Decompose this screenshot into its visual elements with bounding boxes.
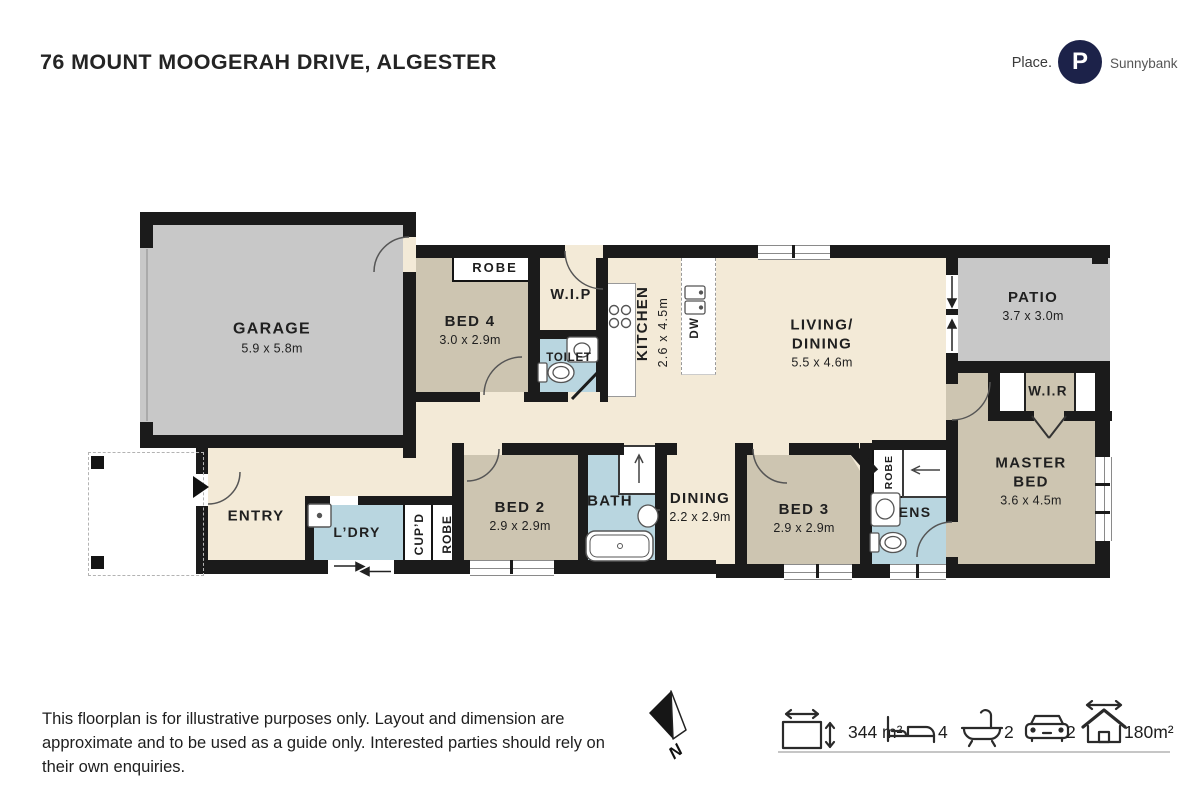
room-dims: 5.9 x 5.8m (233, 342, 311, 356)
wir-door-leaves (1032, 416, 1066, 438)
bed2-door-arc (467, 449, 499, 481)
room-name: W.I.P (550, 287, 591, 303)
room-name: DINING (670, 490, 730, 507)
kitchen-label: KITCHEN (634, 286, 651, 361)
room-name: LIVING/ (790, 317, 853, 334)
room-name: BED 4 (445, 313, 496, 330)
wip-door-arc (565, 251, 603, 289)
master-door-arc (952, 382, 990, 420)
entry-label: ENTRY (228, 508, 285, 525)
bathtub-icon (586, 531, 653, 561)
kitchen-dims: 2.6 x 4.5m (656, 297, 670, 367)
master-bed-label: MASTER BED 3.6 x 4.5m (995, 455, 1066, 508)
room-dims: 3.6 x 4.5m (995, 494, 1066, 508)
bed3-door-arc (753, 449, 787, 483)
bed2-label: BED 2 2.9 x 2.9m (489, 499, 550, 533)
wir-label: W.I.R (1028, 384, 1068, 399)
laundry-tub-icon (308, 504, 331, 527)
room-name: ENTRY (228, 508, 285, 525)
compass-north-label: N (665, 740, 687, 763)
dining-label: DINING 2.2 x 2.9m (669, 490, 730, 524)
patio-label: PATIO 3.7 x 3.0m (1002, 289, 1063, 323)
room-name: W.I.R (1028, 384, 1068, 399)
bed3-label: BED 3 2.9 x 2.9m (773, 501, 834, 535)
room-name: MASTER (995, 455, 1066, 472)
room-name: TOILET (546, 352, 591, 364)
basin-icon (638, 505, 660, 527)
bed-count-value: 4 (938, 722, 948, 743)
bed4-label: BED 4 3.0 x 2.9m (439, 313, 500, 347)
shower-arrow (912, 466, 940, 474)
toilet-door-leaf (572, 372, 598, 399)
room-dims: 3.7 x 3.0m (1002, 309, 1063, 323)
dishwasher-label: DW (689, 317, 701, 339)
room-name: BED 3 (779, 501, 830, 518)
bath-count-value: 2 (1004, 722, 1014, 743)
laundry-label: L’DRY (333, 524, 380, 540)
entry-door-arc (208, 472, 240, 504)
sink-icon (685, 286, 705, 314)
toilet-label: TOILET (546, 352, 591, 364)
garage-label: GARAGE 5.9 x 5.8m (233, 321, 311, 356)
living-dining-label: LIVING/ DINING 5.5 x 4.6m (790, 317, 853, 370)
vanity-icon (871, 493, 900, 526)
room-name: BED (995, 474, 1066, 491)
room-dims: 3.0 x 2.9m (439, 333, 500, 347)
cooktop-icon (610, 306, 631, 328)
room-name: BED 2 (495, 499, 546, 516)
bed-icon (884, 712, 938, 748)
bed3-chamfer-wall (851, 447, 874, 473)
car-icon (1022, 708, 1072, 746)
room-dims: 2.9 x 2.9m (773, 521, 834, 535)
garage-door-arc (374, 237, 409, 272)
room-dims: 2.2 x 2.9m (669, 510, 730, 524)
shower-arrow (635, 455, 643, 483)
room-name: GARAGE (233, 321, 311, 338)
ensuite-door-arc (917, 522, 952, 557)
toilet-icon (538, 363, 574, 383)
disclaimer-text: This floorplan is for illustrative purpo… (42, 708, 612, 780)
room-name: PATIO (1008, 289, 1058, 306)
toilet-icon (870, 533, 906, 553)
house-area-value: 180m² (1124, 722, 1174, 743)
car-count-value: 2 (1066, 722, 1076, 743)
wip-label: W.I.P (550, 287, 591, 303)
bath-icon (958, 704, 1006, 750)
ensuite-label: ENS (899, 504, 932, 520)
north-compass-icon: N (646, 686, 710, 766)
room-name: ENS (899, 504, 932, 520)
room-name: DINING (790, 336, 853, 353)
house-area-icon (1078, 700, 1130, 750)
room-dims: 2.9 x 2.9m (489, 519, 550, 533)
bed4-door-arc (484, 357, 522, 395)
stats-divider (778, 751, 1170, 753)
bath-label: BATH (587, 493, 633, 510)
entry-arrow (193, 476, 209, 498)
room-name: BATH (587, 493, 633, 510)
plan-annotations (0, 0, 1200, 800)
room-dims: 5.5 x 4.6m (790, 356, 853, 370)
room-name: L’DRY (333, 524, 380, 540)
land-area-icon (780, 708, 840, 750)
